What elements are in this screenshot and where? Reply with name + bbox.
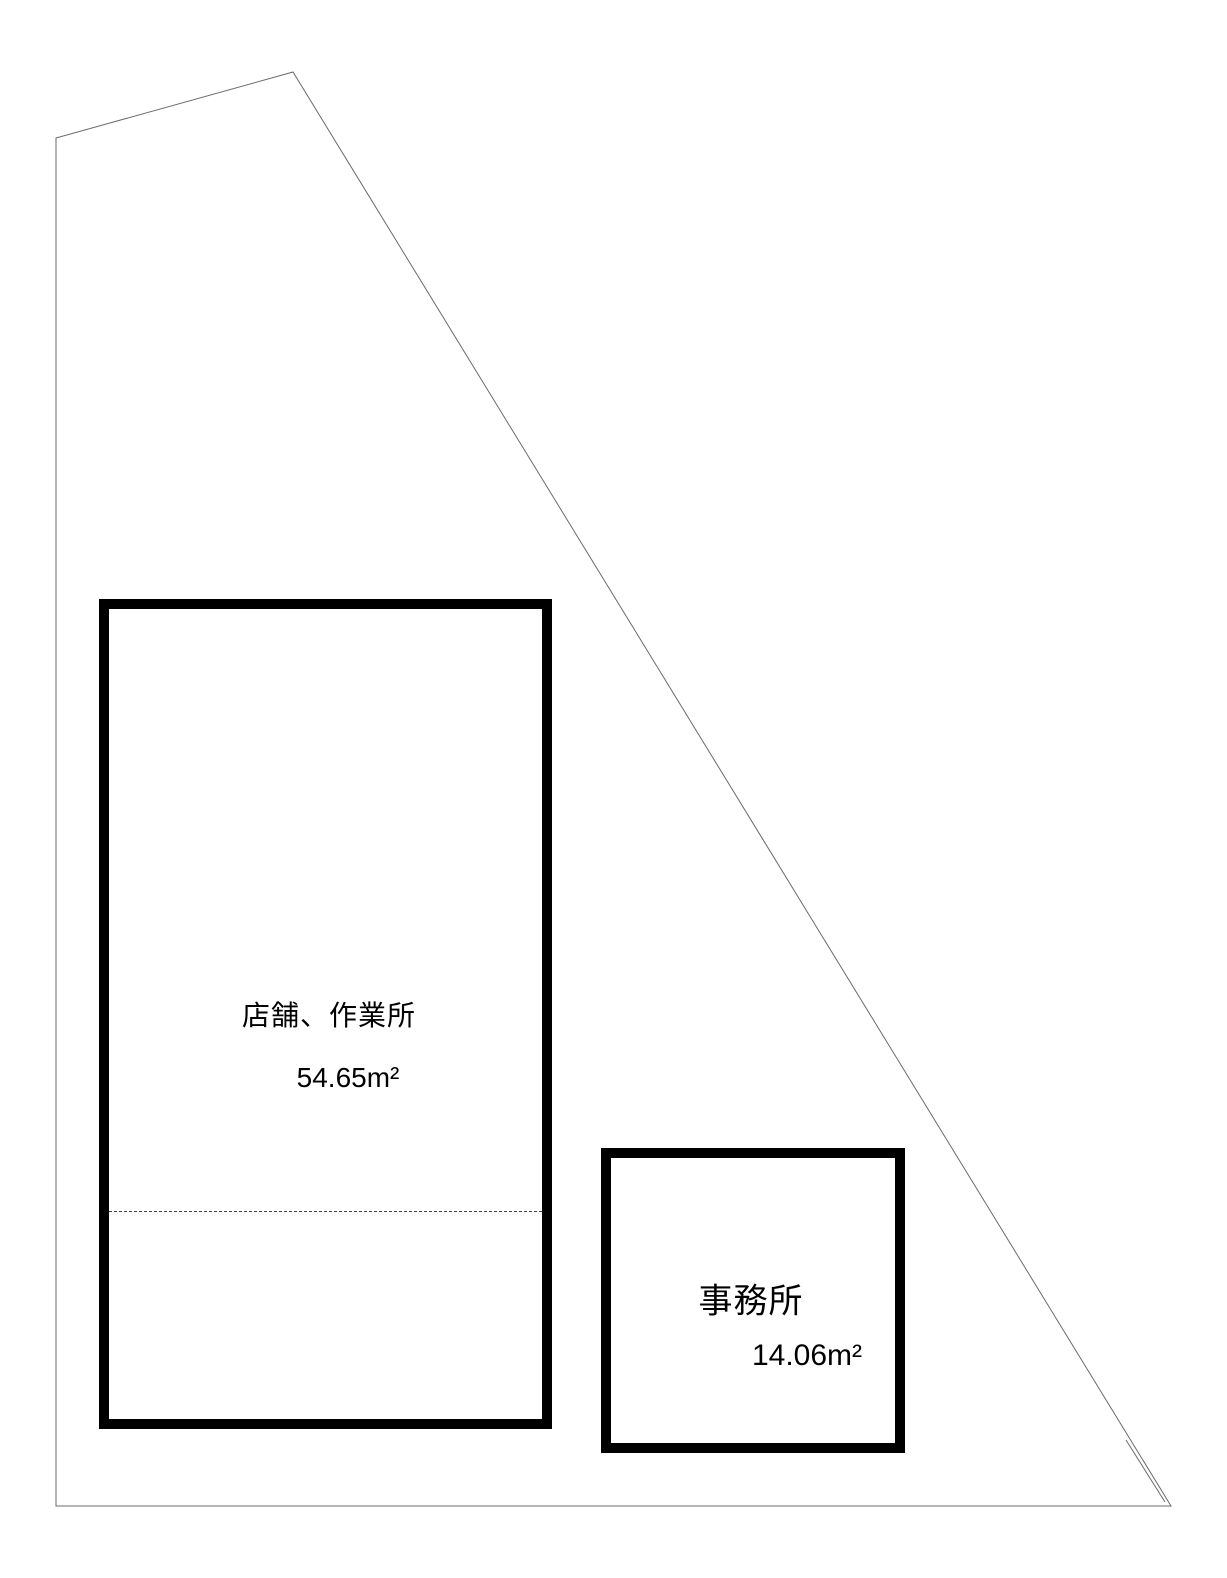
building-shop-workshop: 店舗、作業所 54.65m² (99, 599, 552, 1429)
shop-workshop-label: 店舗、作業所 (242, 994, 416, 1034)
boundary-sliver-line (1126, 1440, 1165, 1502)
site-plan-canvas: 店舗、作業所 54.65m² 事務所 14.06m² (0, 0, 1227, 1578)
office-area: 14.06m² (752, 1339, 862, 1373)
building-office: 事務所 14.06m² (601, 1148, 905, 1453)
office-label: 事務所 (699, 1274, 804, 1323)
shop-workshop-area: 54.65m² (297, 1062, 400, 1094)
partition-dashed-line (109, 1211, 542, 1212)
